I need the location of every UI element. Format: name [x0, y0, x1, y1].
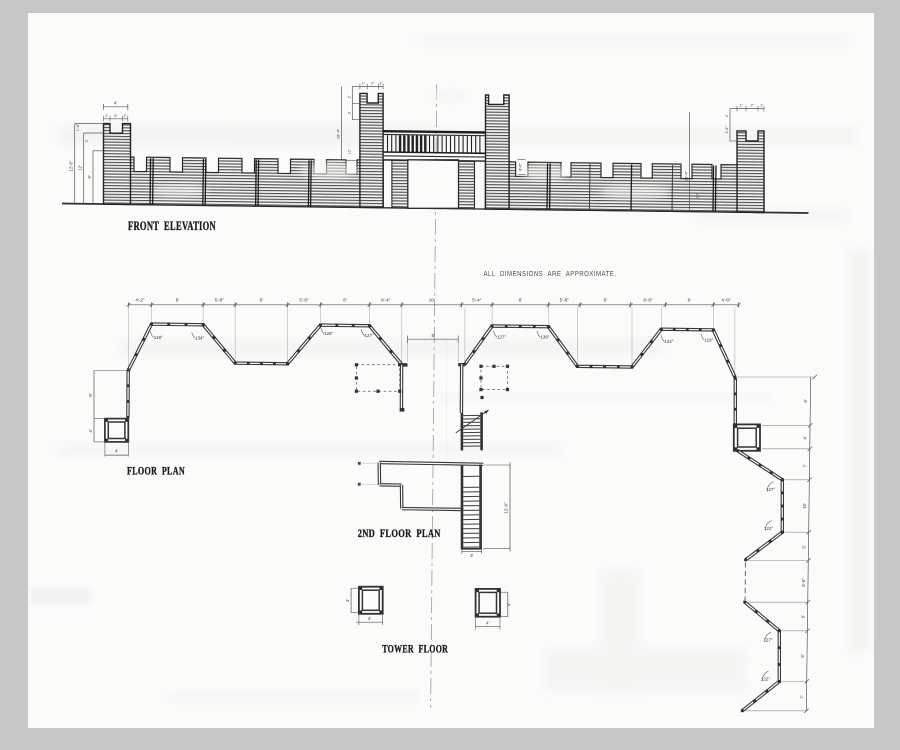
svg-text:139°: 139° — [540, 334, 550, 339]
svg-text:12′-6″: 12′-6″ — [68, 160, 73, 171]
svg-text:8′: 8′ — [88, 393, 93, 396]
svg-text:7′: 7′ — [802, 464, 807, 467]
svg-text:4′: 4′ — [88, 429, 93, 432]
svg-text:10′: 10′ — [429, 297, 435, 302]
svg-text:8′: 8′ — [519, 297, 523, 302]
svg-text:18′-4″: 18′-4″ — [335, 128, 340, 139]
svg-text:8′: 8′ — [260, 297, 264, 302]
svg-text:1′-6″: 1′-6″ — [76, 123, 80, 131]
svg-text:5′-8″: 5′-8″ — [215, 297, 225, 302]
svg-text:132°: 132° — [664, 339, 674, 344]
svg-text:118°: 118° — [705, 338, 714, 343]
svg-text:1′: 1′ — [740, 103, 743, 107]
svg-text:4′-2″: 4′-2″ — [135, 297, 145, 302]
svg-text:12′: 12′ — [696, 193, 700, 198]
svg-text:TOWER FLOOR: TOWER FLOOR — [382, 644, 448, 656]
svg-text:134°: 134° — [195, 336, 205, 341]
svg-text:8′: 8′ — [176, 297, 180, 302]
svg-text:2′: 2′ — [105, 114, 108, 118]
svg-text:127°: 127° — [365, 333, 375, 338]
svg-text:5′-8″: 5′-8″ — [299, 297, 309, 302]
svg-text:8′: 8′ — [803, 399, 808, 402]
svg-text:4′: 4′ — [368, 616, 371, 621]
svg-text:8′-6″: 8′-6″ — [519, 163, 523, 171]
svg-text:4′: 4′ — [486, 621, 489, 626]
svg-text:ALL DIMENSIONS ARE APPROXIM: ALL DIMENSIONS ARE APPROXIMATE. — [484, 269, 617, 278]
svg-text:1′: 1′ — [362, 82, 365, 86]
svg-text:2ND FLOOR PLAN: 2ND FLOOR PLAN — [358, 528, 441, 540]
svg-text:128°: 128° — [324, 331, 334, 336]
svg-text:FLOOR PLAN: FLOOR PLAN — [127, 466, 185, 478]
svg-text:5′-8″: 5′-8″ — [560, 297, 570, 302]
svg-text:8′: 8′ — [604, 297, 608, 302]
svg-text:8′-6″: 8′-6″ — [801, 578, 806, 587]
svg-text:8′: 8′ — [431, 333, 435, 338]
svg-text:4′-8″: 4′-8″ — [721, 297, 731, 302]
svg-text:5′: 5′ — [801, 545, 806, 548]
svg-text:4′: 4′ — [115, 449, 118, 454]
svg-text:8′-8″: 8′-8″ — [643, 297, 653, 302]
svg-text:118°: 118° — [154, 335, 163, 340]
svg-text:4′: 4′ — [803, 436, 808, 439]
svg-text:10′: 10′ — [802, 503, 807, 509]
svg-text:9′: 9′ — [87, 175, 92, 178]
svg-text:2′: 2′ — [371, 82, 374, 86]
svg-text:2′: 2′ — [751, 103, 754, 107]
svg-text:1′: 1′ — [379, 82, 382, 86]
svg-text:2′: 2′ — [85, 139, 89, 142]
svg-text:8′: 8′ — [800, 654, 805, 657]
svg-text:12′-6″: 12′-6″ — [503, 502, 508, 514]
svg-text:4′: 4′ — [507, 603, 512, 606]
svg-text:5′-4″: 5′-4″ — [472, 297, 482, 302]
svg-text:18′-4″: 18′-4″ — [683, 170, 688, 181]
svg-text:3′: 3′ — [347, 111, 351, 114]
svg-text:1′-6″: 1′-6″ — [725, 126, 729, 134]
svg-text:1′: 1′ — [760, 103, 763, 107]
svg-text:6′: 6′ — [688, 297, 692, 302]
svg-text:8′: 8′ — [343, 297, 347, 302]
svg-text:2′: 2′ — [725, 114, 729, 117]
svg-text:127°: 127° — [497, 334, 507, 339]
svg-text:12′: 12′ — [78, 165, 83, 171]
svg-text:2′: 2′ — [347, 95, 351, 98]
svg-text:FRONT ELEVATION: FRONT ELEVATION — [128, 219, 216, 233]
svg-text:7′: 7′ — [799, 695, 804, 698]
svg-text:4′: 4′ — [345, 599, 350, 602]
svg-text:4′: 4′ — [114, 101, 117, 106]
svg-text:3′: 3′ — [470, 553, 473, 558]
svg-text:8′-4″: 8′-4″ — [381, 297, 391, 302]
svg-text:6′: 6′ — [800, 615, 805, 618]
svg-text:12′: 12′ — [348, 149, 352, 154]
